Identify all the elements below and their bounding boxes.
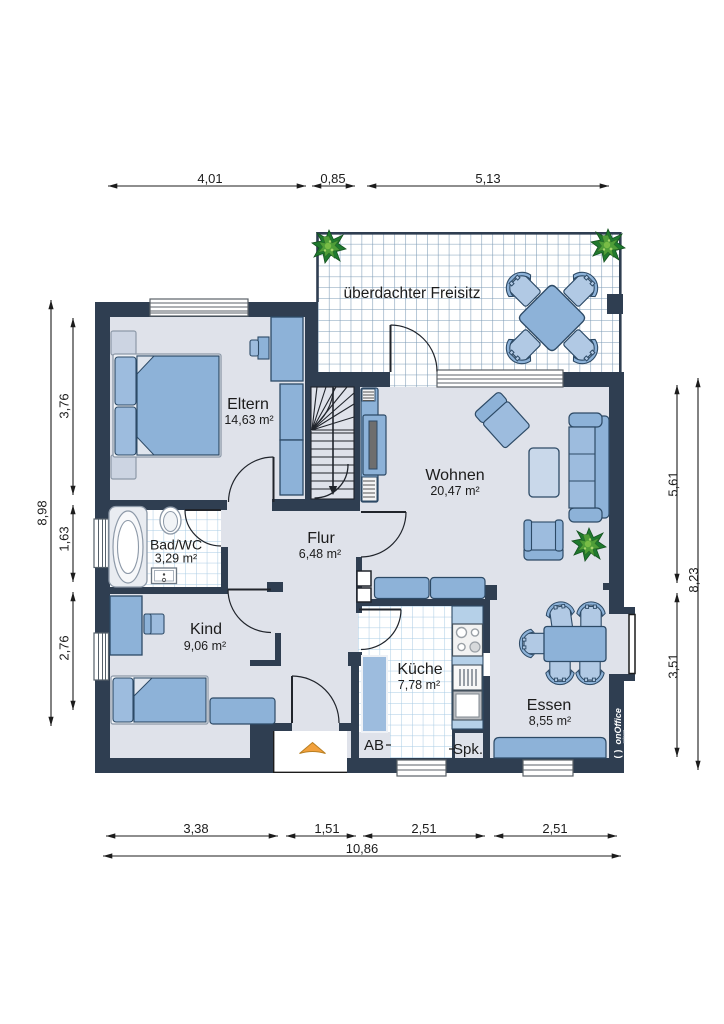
svg-text:überdachter Freisitz: überdachter Freisitz (344, 285, 481, 302)
svg-text:2,51: 2,51 (542, 821, 567, 836)
svg-text:2,76: 2,76 (57, 635, 72, 660)
svg-text:10,86: 10,86 (346, 841, 379, 856)
svg-text:2,51: 2,51 (411, 821, 436, 836)
svg-text:0,85: 0,85 (320, 171, 345, 186)
svg-text:8,98: 8,98 (35, 500, 50, 525)
svg-text:20,47 m²: 20,47 m² (430, 484, 479, 498)
svg-text:8,55 m²: 8,55 m² (529, 714, 571, 728)
svg-text:7,78 m²: 7,78 m² (398, 678, 440, 692)
svg-text:1,51: 1,51 (314, 821, 339, 836)
svg-text:3,38: 3,38 (183, 821, 208, 836)
svg-text:5,13: 5,13 (475, 171, 500, 186)
svg-text:9,06 m²: 9,06 m² (184, 639, 226, 653)
svg-text:Flur: Flur (307, 530, 335, 547)
svg-text:software: software (622, 730, 626, 744)
svg-text:14,63 m²: 14,63 m² (224, 413, 273, 427)
svg-text:3,76: 3,76 (57, 393, 72, 418)
svg-text:6,48 m²: 6,48 m² (299, 547, 341, 561)
svg-text:Wohnen: Wohnen (425, 467, 484, 484)
svg-text:Essen: Essen (527, 697, 571, 714)
svg-text:Spk.: Spk. (453, 741, 483, 758)
svg-text:1,63: 1,63 (57, 526, 72, 551)
svg-text:Kind: Kind (190, 621, 222, 638)
svg-text:( ): ( ) (613, 750, 624, 759)
svg-text:5,61: 5,61 (666, 471, 681, 496)
svg-text:Küche: Küche (397, 661, 442, 678)
svg-text:3,29 m²: 3,29 m² (155, 552, 197, 566)
svg-text:4,01: 4,01 (197, 171, 222, 186)
svg-text:3,51: 3,51 (666, 653, 681, 678)
svg-text:8,23: 8,23 (686, 567, 701, 592)
svg-text:Eltern: Eltern (227, 396, 269, 413)
svg-text:Bad/WC: Bad/WC (150, 537, 202, 553)
svg-text:AB: AB (364, 737, 384, 754)
